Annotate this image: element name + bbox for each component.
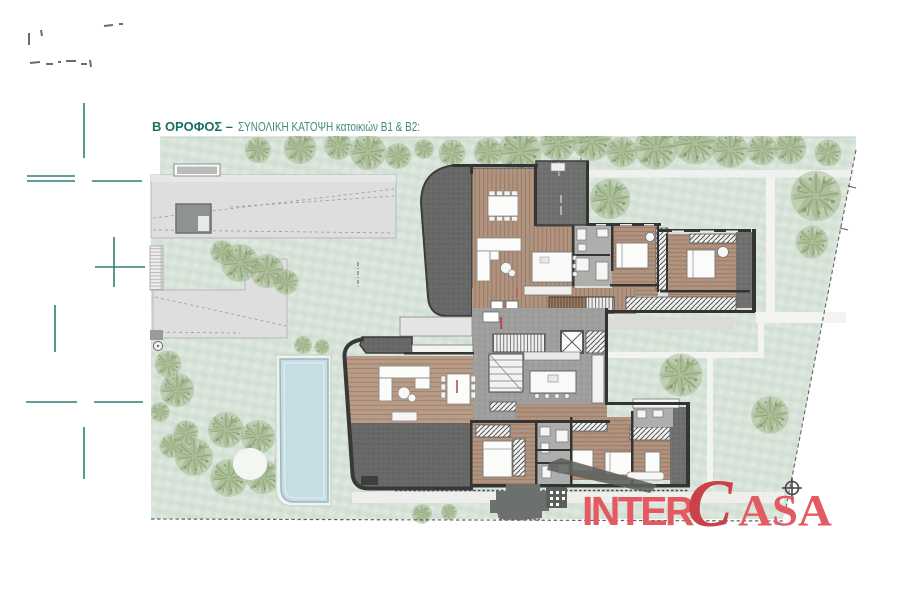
svg-text:C: C — [687, 465, 733, 541]
svg-text:ΣΥΝΟΛΙΚΗ ΚΑΤΟΨΗ κατοικιών Β1 &: ΣΥΝΟΛΙΚΗ ΚΑΤΟΨΗ κατοικιών Β1 & Β2: — [238, 120, 420, 134]
svg-text:Β ΟΡΟΦΟΣ –: Β ΟΡΟΦΟΣ – — [152, 120, 233, 134]
svg-text:ASA: ASA — [738, 486, 832, 535]
svg-text:INTER: INTER — [582, 488, 694, 534]
